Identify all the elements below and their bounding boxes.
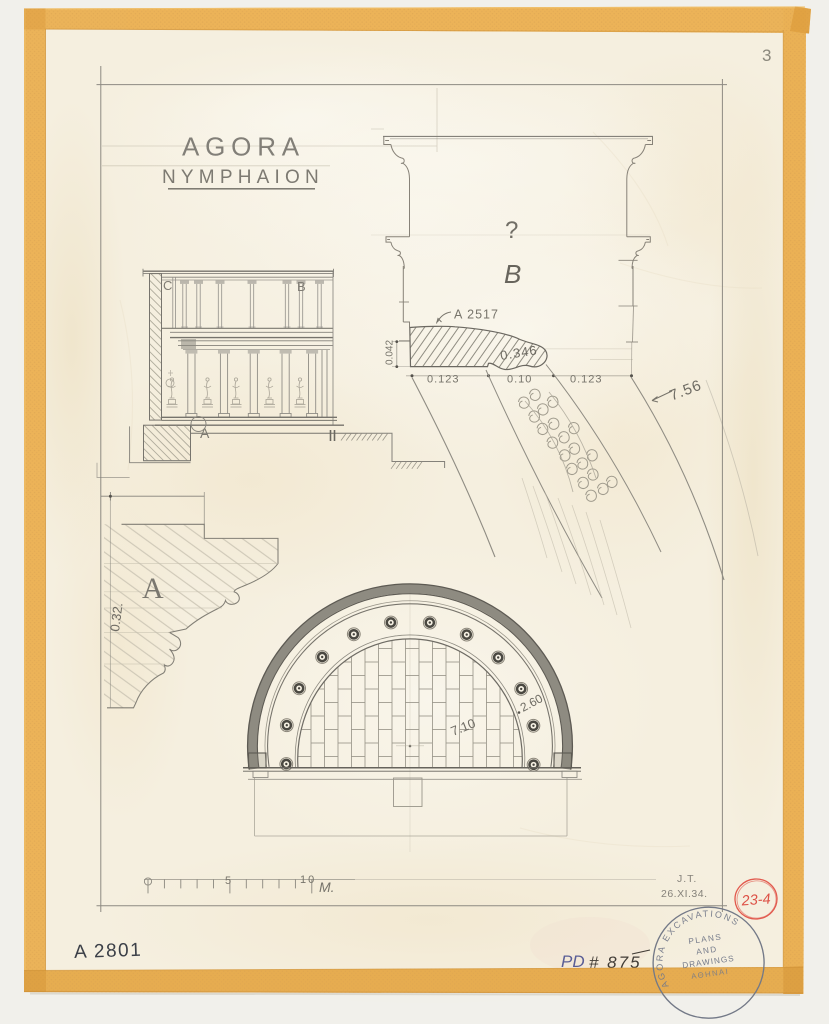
svg-text:B: B xyxy=(297,279,306,294)
svg-text:10: 10 xyxy=(300,874,316,886)
svg-text:26.XI.34.: 26.XI.34. xyxy=(661,888,708,900)
svg-text:0.123: 0.123 xyxy=(427,374,460,386)
svg-text:A 2801: A 2801 xyxy=(74,940,143,963)
svg-text:?: ? xyxy=(505,217,518,244)
svg-text:C: C xyxy=(163,278,172,293)
svg-text:A: A xyxy=(200,425,210,441)
svg-text:0.042: 0.042 xyxy=(385,340,396,365)
svg-text:NYMPHAION: NYMPHAION xyxy=(162,167,324,188)
svg-text:B: B xyxy=(504,259,521,289)
svg-text:0.123: 0.123 xyxy=(570,374,603,386)
svg-text:3: 3 xyxy=(762,46,771,65)
svg-text:0.10: 0.10 xyxy=(507,374,532,386)
svg-text:A: A xyxy=(142,572,164,605)
svg-text:AGORA: AGORA xyxy=(182,132,305,162)
svg-text:J.T.: J.T. xyxy=(677,873,697,885)
svg-text:A 2517: A 2517 xyxy=(454,308,499,322)
svg-text:5: 5 xyxy=(225,875,231,887)
svg-text:23-4: 23-4 xyxy=(740,892,771,910)
svg-text:M.: M. xyxy=(319,879,335,895)
